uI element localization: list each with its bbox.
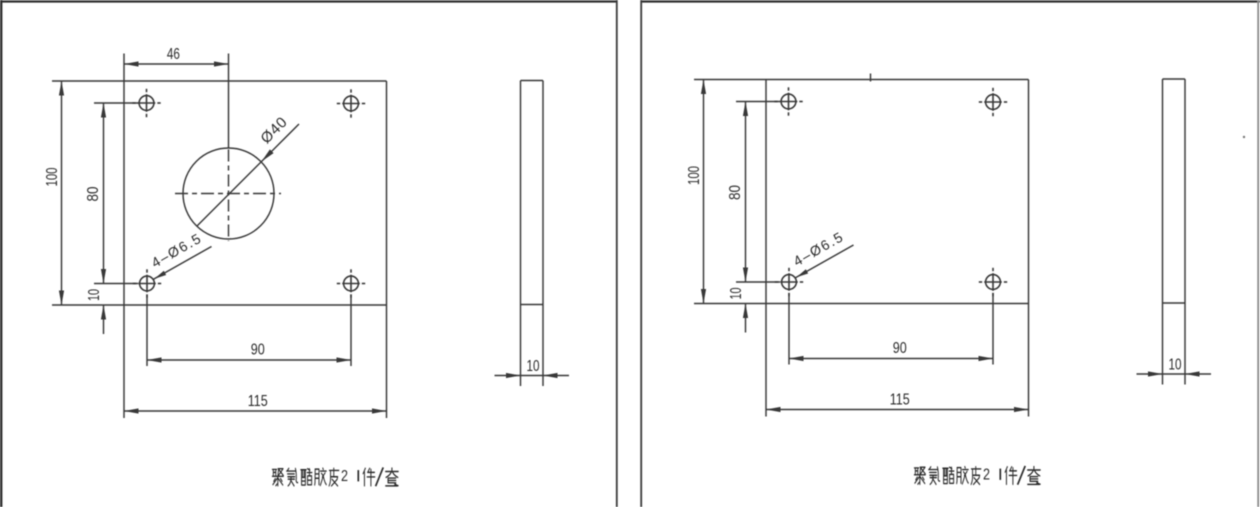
svg-text:90: 90 <box>893 340 907 357</box>
svg-text:100: 100 <box>44 167 61 186</box>
svg-text:2: 2 <box>341 468 348 485</box>
svg-text:80: 80 <box>727 185 744 200</box>
svg-text:46: 46 <box>167 46 180 63</box>
svg-text:90: 90 <box>251 342 265 359</box>
svg-text:10: 10 <box>86 289 103 301</box>
svg-text:10: 10 <box>527 358 540 375</box>
svg-text:10: 10 <box>728 287 745 299</box>
svg-text:10: 10 <box>1169 357 1182 374</box>
svg-text:4–Ø6.5: 4–Ø6.5 <box>790 228 846 269</box>
svg-text:115: 115 <box>248 393 268 410</box>
svg-text:Ø40: Ø40 <box>257 113 291 147</box>
svg-text:115: 115 <box>890 391 910 408</box>
svg-text:4–Ø6.5: 4–Ø6.5 <box>148 230 204 271</box>
svg-text:2: 2 <box>983 466 990 483</box>
svg-text:100: 100 <box>686 166 703 185</box>
svg-text:80: 80 <box>85 186 102 201</box>
